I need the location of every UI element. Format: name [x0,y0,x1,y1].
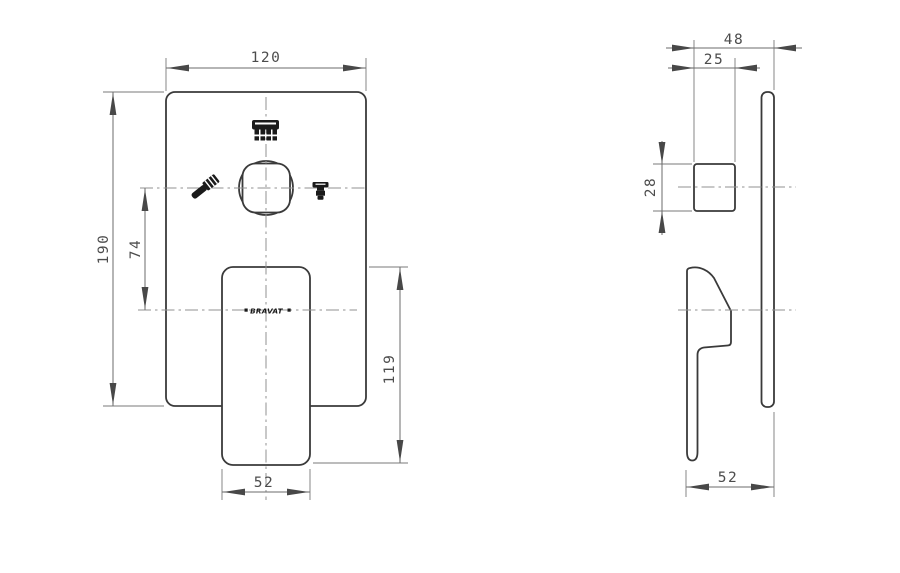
dim-label-handle-depth: 52 [718,470,738,486]
front-view: BRAVAT 120 190 74 [96,50,408,500]
dim-front-width: 120 [166,50,366,91]
dim-label-handle-length: 119 [382,354,398,385]
side-view: 48 25 28 52 [643,32,802,497]
mounting-plate-side [762,92,775,407]
dim-label-plate-width: 120 [251,50,282,66]
dim-label-center-offset: 74 [128,239,144,259]
dim-label-plate-height: 190 [96,234,112,265]
dim-label-knob-height: 28 [643,177,659,197]
dim-side-knob-height: 28 [643,141,692,235]
dim-label-handle-width: 52 [254,475,274,491]
dim-side-knob-depth: 25 [668,52,760,162]
dim-side-total-depth: 48 [666,32,802,162]
lever-handle-side [687,267,731,460]
dim-label-knob-depth: 25 [704,52,724,68]
dim-side-handle-depth: 52 [686,412,774,497]
logo-text: BRAVAT [250,307,284,316]
dim-center-offset: 74 [128,188,148,310]
logo-left-dot [245,309,248,312]
dim-label-total-depth: 48 [724,32,744,48]
logo-right-dot [288,309,291,312]
technical-drawing-canvas: BRAVAT 120 190 74 [0,0,900,573]
